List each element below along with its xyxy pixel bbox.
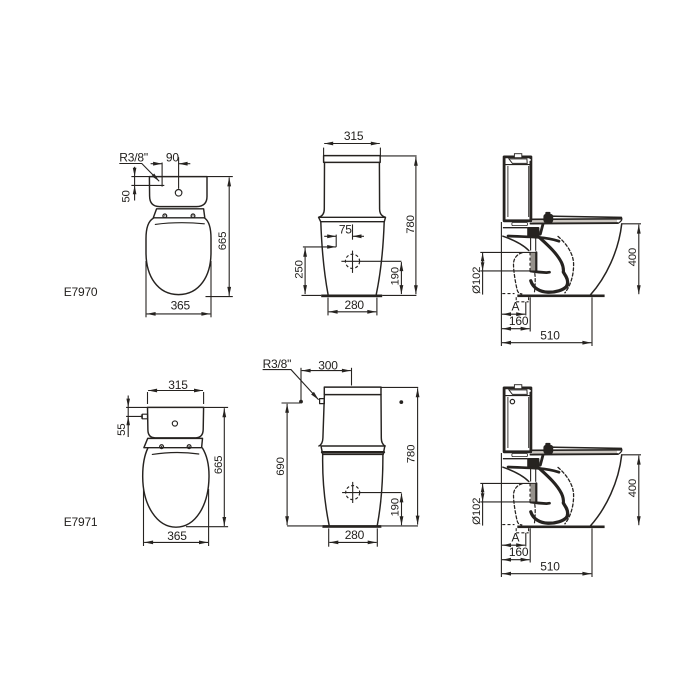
- svg-text:190: 190: [390, 498, 402, 516]
- svg-text:365: 365: [171, 299, 191, 313]
- svg-text:90: 90: [166, 150, 179, 164]
- svg-text:R3/8": R3/8": [263, 357, 292, 371]
- svg-text:315: 315: [344, 129, 364, 143]
- svg-text:365: 365: [167, 529, 187, 543]
- svg-text:250: 250: [293, 260, 305, 278]
- svg-text:E7970: E7970: [64, 285, 98, 299]
- svg-text:280: 280: [345, 528, 365, 542]
- svg-text:R3/8": R3/8": [119, 150, 148, 164]
- svg-text:510: 510: [540, 328, 560, 342]
- svg-text:300: 300: [318, 359, 338, 373]
- svg-text:E7971: E7971: [64, 515, 98, 529]
- svg-text:190: 190: [390, 267, 402, 285]
- svg-text:A: A: [511, 300, 519, 314]
- svg-text:780: 780: [406, 445, 418, 463]
- svg-text:400: 400: [627, 248, 639, 266]
- svg-text:55: 55: [116, 424, 128, 436]
- svg-text:780: 780: [405, 215, 417, 233]
- svg-text:Ø102: Ø102: [471, 267, 483, 294]
- svg-text:160: 160: [509, 314, 529, 328]
- svg-text:50: 50: [121, 190, 133, 202]
- svg-text:75: 75: [339, 222, 352, 236]
- svg-text:315: 315: [168, 378, 188, 392]
- svg-text:665: 665: [217, 232, 229, 250]
- svg-text:665: 665: [213, 456, 225, 474]
- svg-text:280: 280: [344, 298, 364, 312]
- svg-text:690: 690: [275, 457, 287, 475]
